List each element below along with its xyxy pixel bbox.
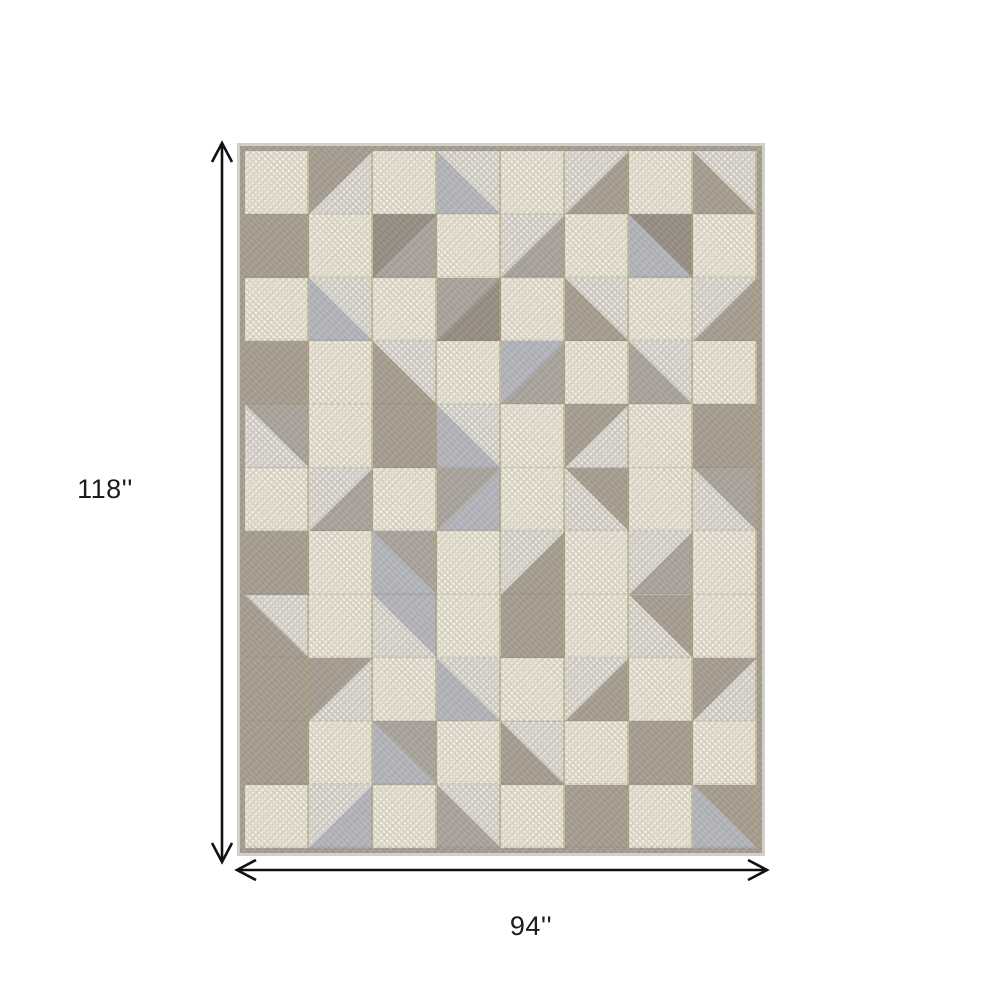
rug-cell [373,278,437,341]
rug-cell [245,595,309,658]
rug-cell [437,785,501,848]
rug-cell-triangle [437,278,501,341]
rug-cell-triangle [501,721,565,784]
rug-cell-triangle [373,721,437,784]
rug-image [237,143,765,856]
rug-cell [629,151,693,214]
rug-cell [693,341,757,404]
rug-cell [245,531,309,594]
rug-cell [565,658,629,721]
rug-cell [309,721,373,784]
rug-cell [693,214,757,277]
rug-cell-triangle [629,341,693,404]
rug-cell [565,214,629,277]
rug-cell [693,721,757,784]
rug-cell [629,785,693,848]
rug-cell [629,531,693,594]
rug-cell [309,658,373,721]
rug-cell [373,468,437,531]
rug-cell-triangle [565,278,629,341]
width-dimension-label: 94'' [471,911,591,942]
rug-cell [501,278,565,341]
rug-cell-triangle [309,151,373,214]
product-dimension-image: 118'' 94'' [0,0,1000,1000]
rug-cell-triangle [437,658,501,721]
rug-cell-triangle [309,468,373,531]
rug-cell [693,151,757,214]
rug-cell [373,151,437,214]
rug-cell-triangle [309,785,373,848]
rug-cell [693,658,757,721]
rug-cell [693,531,757,594]
rug-cell [309,785,373,848]
rug-cell [501,404,565,467]
rug-cell [437,468,501,531]
rug-cell-triangle [373,531,437,594]
rug-cell [309,341,373,404]
rug-cell [501,595,565,658]
rug-cell [309,214,373,277]
rug-cell [373,404,437,467]
rug-cell [437,658,501,721]
rug-cell-triangle [501,531,565,594]
rug-cell [309,468,373,531]
rug-cell [245,341,309,404]
rug-cell [373,595,437,658]
rug-cell-triangle [629,595,693,658]
rug-cell [437,341,501,404]
width-dimension-arrow [230,854,774,886]
rug-cell [437,531,501,594]
rug-cell [245,785,309,848]
rug-cell-triangle [501,341,565,404]
rug-cell [245,151,309,214]
rug-cell-triangle [693,468,757,531]
rug-cell [437,214,501,277]
rug-cell-triangle [501,214,565,277]
rug-cell-triangle [309,278,373,341]
rug-cell [629,595,693,658]
rug-cell [373,658,437,721]
rug-cell [309,278,373,341]
rug-cell-triangle [565,658,629,721]
rug-cell [245,278,309,341]
rug-cell [629,278,693,341]
rug-cell [629,721,693,784]
rug-cell-triangle [693,151,757,214]
rug-cell-triangle [373,595,437,658]
rug-cell [373,531,437,594]
rug-cell [373,721,437,784]
rug-cell-triangle [437,785,501,848]
rug-cell [501,721,565,784]
rug-cell-triangle [437,151,501,214]
rug-cell [437,721,501,784]
rug-cell [245,658,309,721]
rug-cell [501,151,565,214]
rug-cell [501,531,565,594]
rug-cell [373,214,437,277]
rug-cell-triangle [565,404,629,467]
height-dimension-label: 118'' [40,474,170,505]
rug-cell [501,658,565,721]
rug-pattern-grid [245,151,757,848]
rug-cell [565,595,629,658]
rug-cell-triangle [693,278,757,341]
rug-cell [245,468,309,531]
rug-cell [629,468,693,531]
rug-cell [501,468,565,531]
rug-cell [309,595,373,658]
rug-cell [309,404,373,467]
rug-cell [565,404,629,467]
rug-cell-triangle [245,404,309,467]
rug-cell [373,341,437,404]
rug-cell-triangle [565,468,629,531]
rug-cell [565,785,629,848]
rug-cell [309,151,373,214]
rug-cell [437,278,501,341]
rug-cell-triangle [373,214,437,277]
rug-cell [309,531,373,594]
rug-cell [245,214,309,277]
rug-cell [629,404,693,467]
rug-cell [565,278,629,341]
rug-cell [501,341,565,404]
rug-cell [245,404,309,467]
rug-cell-triangle [693,785,757,848]
rug-cell [693,278,757,341]
rug-cell [629,658,693,721]
rug-cell [437,595,501,658]
rug-cell [693,785,757,848]
rug-cell-triangle [245,595,309,658]
rug-cell-triangle [437,404,501,467]
rug-cell [501,214,565,277]
rug-cell [373,785,437,848]
rug-cell [565,151,629,214]
height-dimension-arrow [206,136,238,872]
rug-cell-triangle [565,151,629,214]
rug-cell-triangle [693,658,757,721]
rug-cell-triangle [309,658,373,721]
rug-cell [501,785,565,848]
rug-cell [565,721,629,784]
rug-cell [437,151,501,214]
rug-cell [629,214,693,277]
rug-cell [693,595,757,658]
rug-cell [565,468,629,531]
rug-cell [565,531,629,594]
rug-cell-triangle [437,468,501,531]
rug-cell-triangle [629,214,693,277]
rug-cell [437,404,501,467]
rug-cell [629,341,693,404]
rug-cell-triangle [629,531,693,594]
rug-cell [693,468,757,531]
rug-cell [565,341,629,404]
rug-cell-triangle [373,341,437,404]
rug-cell [693,404,757,467]
rug-cell [245,721,309,784]
